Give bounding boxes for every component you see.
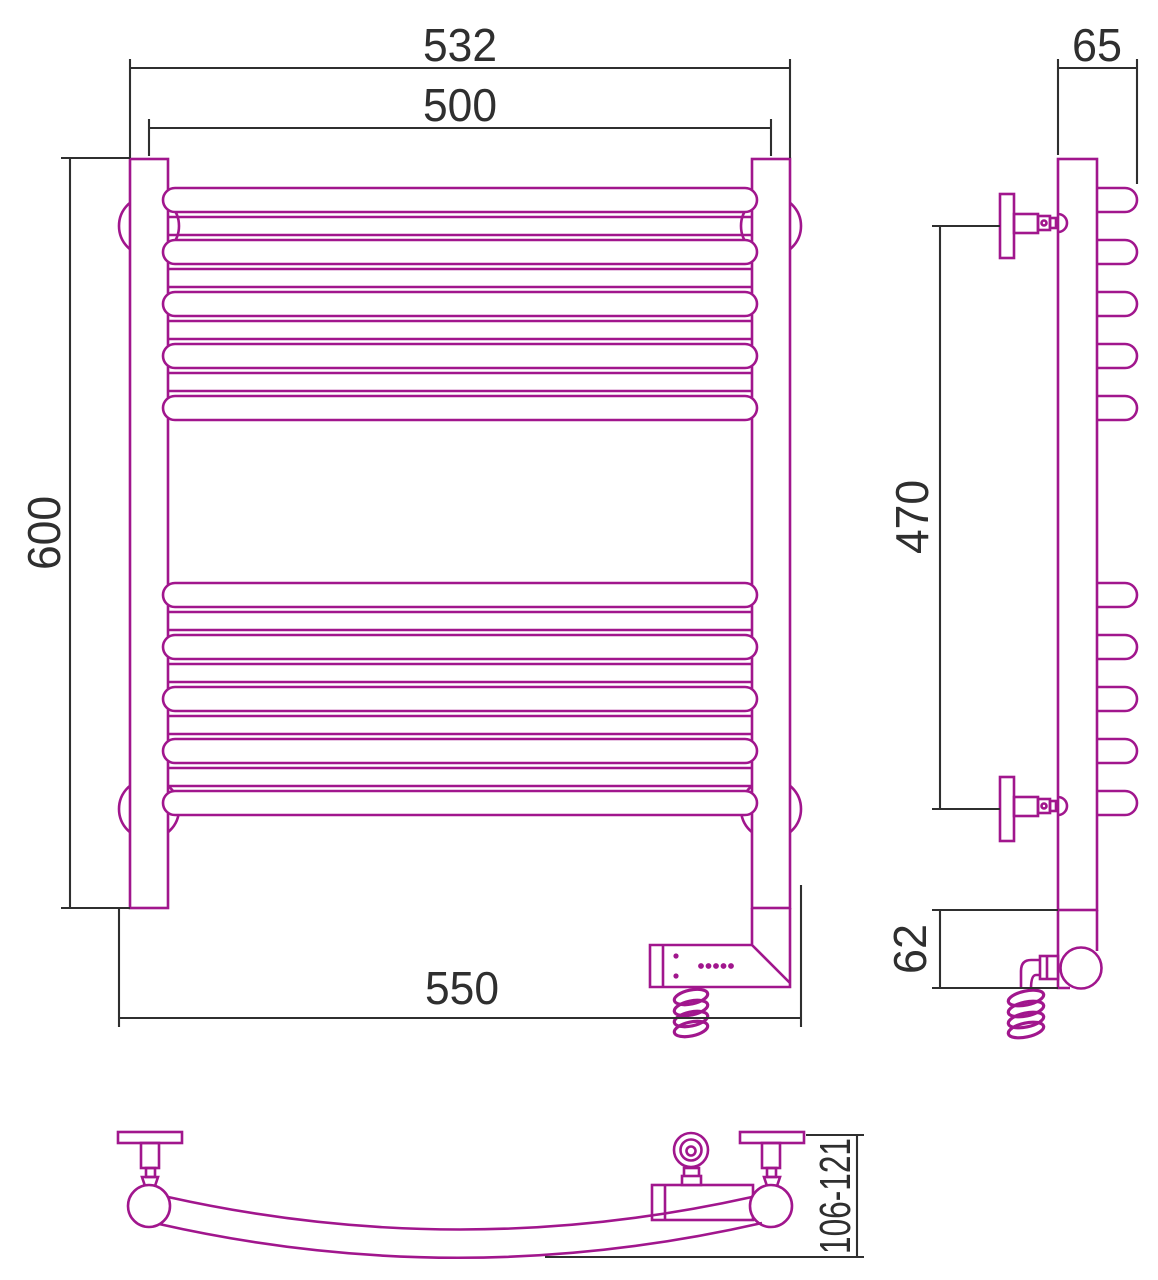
drawing-canvas: 532 500 600 550 65 470 62 106-121 (0, 0, 1158, 1280)
unit-led-indicators (698, 963, 734, 969)
side-post (1058, 159, 1097, 910)
towel-rail-technical-drawing: 532 500 600 550 65 470 62 106-121 (0, 0, 1158, 1280)
dim-front-outer-width: 532 (423, 19, 497, 71)
side-heating-unit (1021, 910, 1102, 989)
top-view (118, 1132, 804, 1258)
front-left-post (130, 159, 168, 908)
dim-front-center-width: 500 (423, 79, 497, 131)
unit-screw-dot (673, 973, 678, 978)
top-right-post-section (750, 1185, 792, 1227)
side-spiral-cord (1007, 987, 1045, 1040)
front-rungs-top-group (163, 188, 757, 420)
top-right-bracket (740, 1132, 804, 1186)
dim-top-wall-offset: 106-121 (811, 1138, 860, 1254)
front-spiral-cord (673, 987, 709, 1040)
top-thermostat-knob (674, 1133, 708, 1185)
top-left-bracket (118, 1132, 182, 1186)
top-left-post-section (128, 1185, 170, 1227)
dim-front-bottom-width: 550 (425, 962, 499, 1014)
unit-screw-dot (673, 953, 678, 958)
front-right-post (752, 159, 790, 908)
side-cable-gland (1040, 956, 1058, 979)
dim-front-height: 600 (18, 496, 70, 570)
front-rungs-bottom-group (163, 583, 757, 815)
front-view (119, 159, 801, 1039)
dim-side-bracket-span: 470 (886, 480, 938, 554)
side-view (1000, 159, 1137, 1041)
side-rung-tabs (1097, 188, 1137, 815)
front-heating-unit (650, 908, 790, 987)
side-cable-elbow (1021, 960, 1040, 989)
dim-side-unit-height: 62 (884, 924, 936, 974)
side-unit-cap (1061, 948, 1102, 989)
top-heating-unit (652, 1185, 753, 1220)
dim-side-depth: 65 (1072, 19, 1122, 71)
